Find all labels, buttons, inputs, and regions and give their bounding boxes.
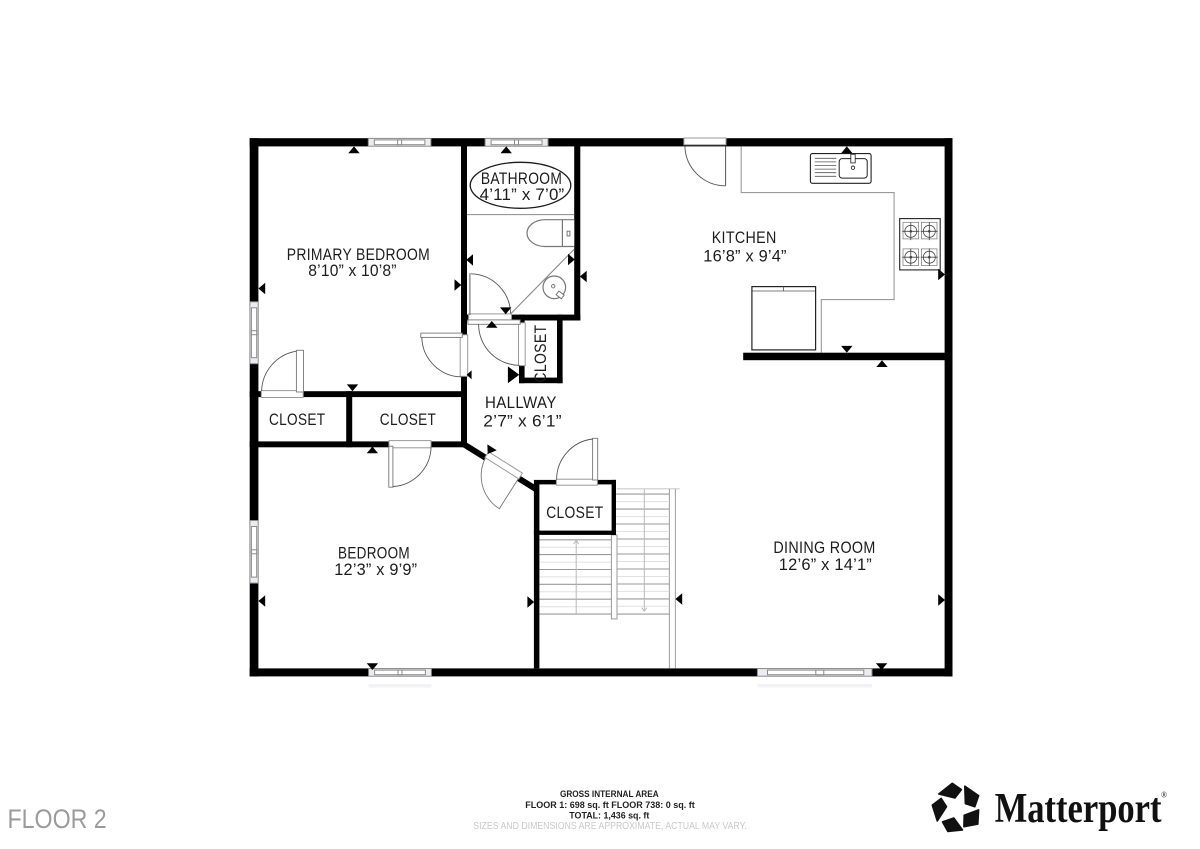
svg-text:2’7” x 6’1”: 2’7” x 6’1”: [483, 411, 562, 430]
svg-text:®: ®: [1161, 790, 1167, 799]
svg-text:FLOOR 2: FLOOR 2: [8, 804, 107, 834]
svg-text:FLOOR 1: 698 sq. ft FLOOR 738:: FLOOR 1: 698 sq. ft FLOOR 738: 0 sq. ft: [525, 800, 694, 810]
svg-text:HALLWAY: HALLWAY: [485, 393, 557, 412]
svg-text:SIZES AND DIMENSIONS ARE APPRO: SIZES AND DIMENSIONS ARE APPROXIMATE, AC…: [473, 821, 746, 832]
svg-text:KITCHEN: KITCHEN: [712, 228, 777, 247]
svg-text:8’10” x 10’8”: 8’10” x 10’8”: [308, 261, 397, 280]
svg-text:16’8” x 9’4”: 16’8” x 9’4”: [703, 246, 787, 265]
svg-text:CLOSET: CLOSET: [380, 410, 436, 429]
svg-text:Matterport: Matterport: [995, 786, 1162, 832]
svg-text:CLOSET: CLOSET: [531, 325, 550, 383]
svg-text:TOTAL: 1,436 sq. ft: TOTAL: 1,436 sq. ft: [569, 810, 649, 820]
svg-text:4’11” x 7’0”: 4’11” x 7’0”: [480, 185, 565, 204]
svg-text:CLOSET: CLOSET: [269, 410, 325, 429]
svg-text:CLOSET: CLOSET: [546, 503, 603, 522]
svg-text:GROSS INTERNAL AREA: GROSS INTERNAL AREA: [560, 789, 659, 799]
svg-text:12’6” x 14’1”: 12’6” x 14’1”: [779, 555, 872, 574]
svg-text:12’3” x 9’9”: 12’3” x 9’9”: [334, 560, 417, 579]
